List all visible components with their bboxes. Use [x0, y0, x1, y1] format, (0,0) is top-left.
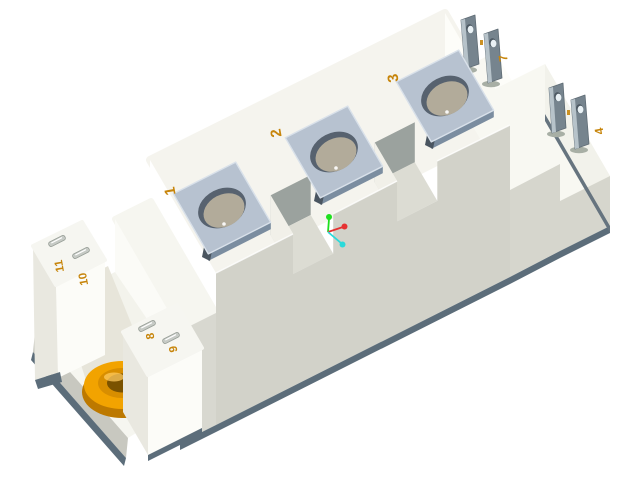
pad-hole-glint — [445, 110, 449, 114]
axis-y-line — [328, 219, 329, 232]
module-render: 11 10 8 9 — [0, 0, 641, 478]
blade-hole — [556, 94, 562, 102]
pin-tower-front: 8 9 — [123, 305, 202, 461]
pin-label-10: 10 — [77, 272, 91, 287]
faston-blade — [549, 83, 566, 133]
hidden-label-speck — [567, 110, 570, 115]
pad-hole-glint — [222, 222, 226, 226]
hidden-label-speck — [480, 40, 483, 45]
axis-y-dot — [326, 214, 332, 220]
blade-hole — [578, 106, 584, 114]
axis-x-dot — [342, 224, 348, 230]
cad-viewport[interactable]: 11 10 8 9 — [0, 0, 641, 478]
blade-hole — [491, 40, 497, 48]
tab-label-4: 4 — [592, 126, 607, 135]
axis-z-dot — [340, 242, 346, 248]
blade-hole — [468, 26, 474, 34]
pad-hole-glint — [334, 166, 338, 170]
bushing-highlight — [104, 373, 124, 382]
